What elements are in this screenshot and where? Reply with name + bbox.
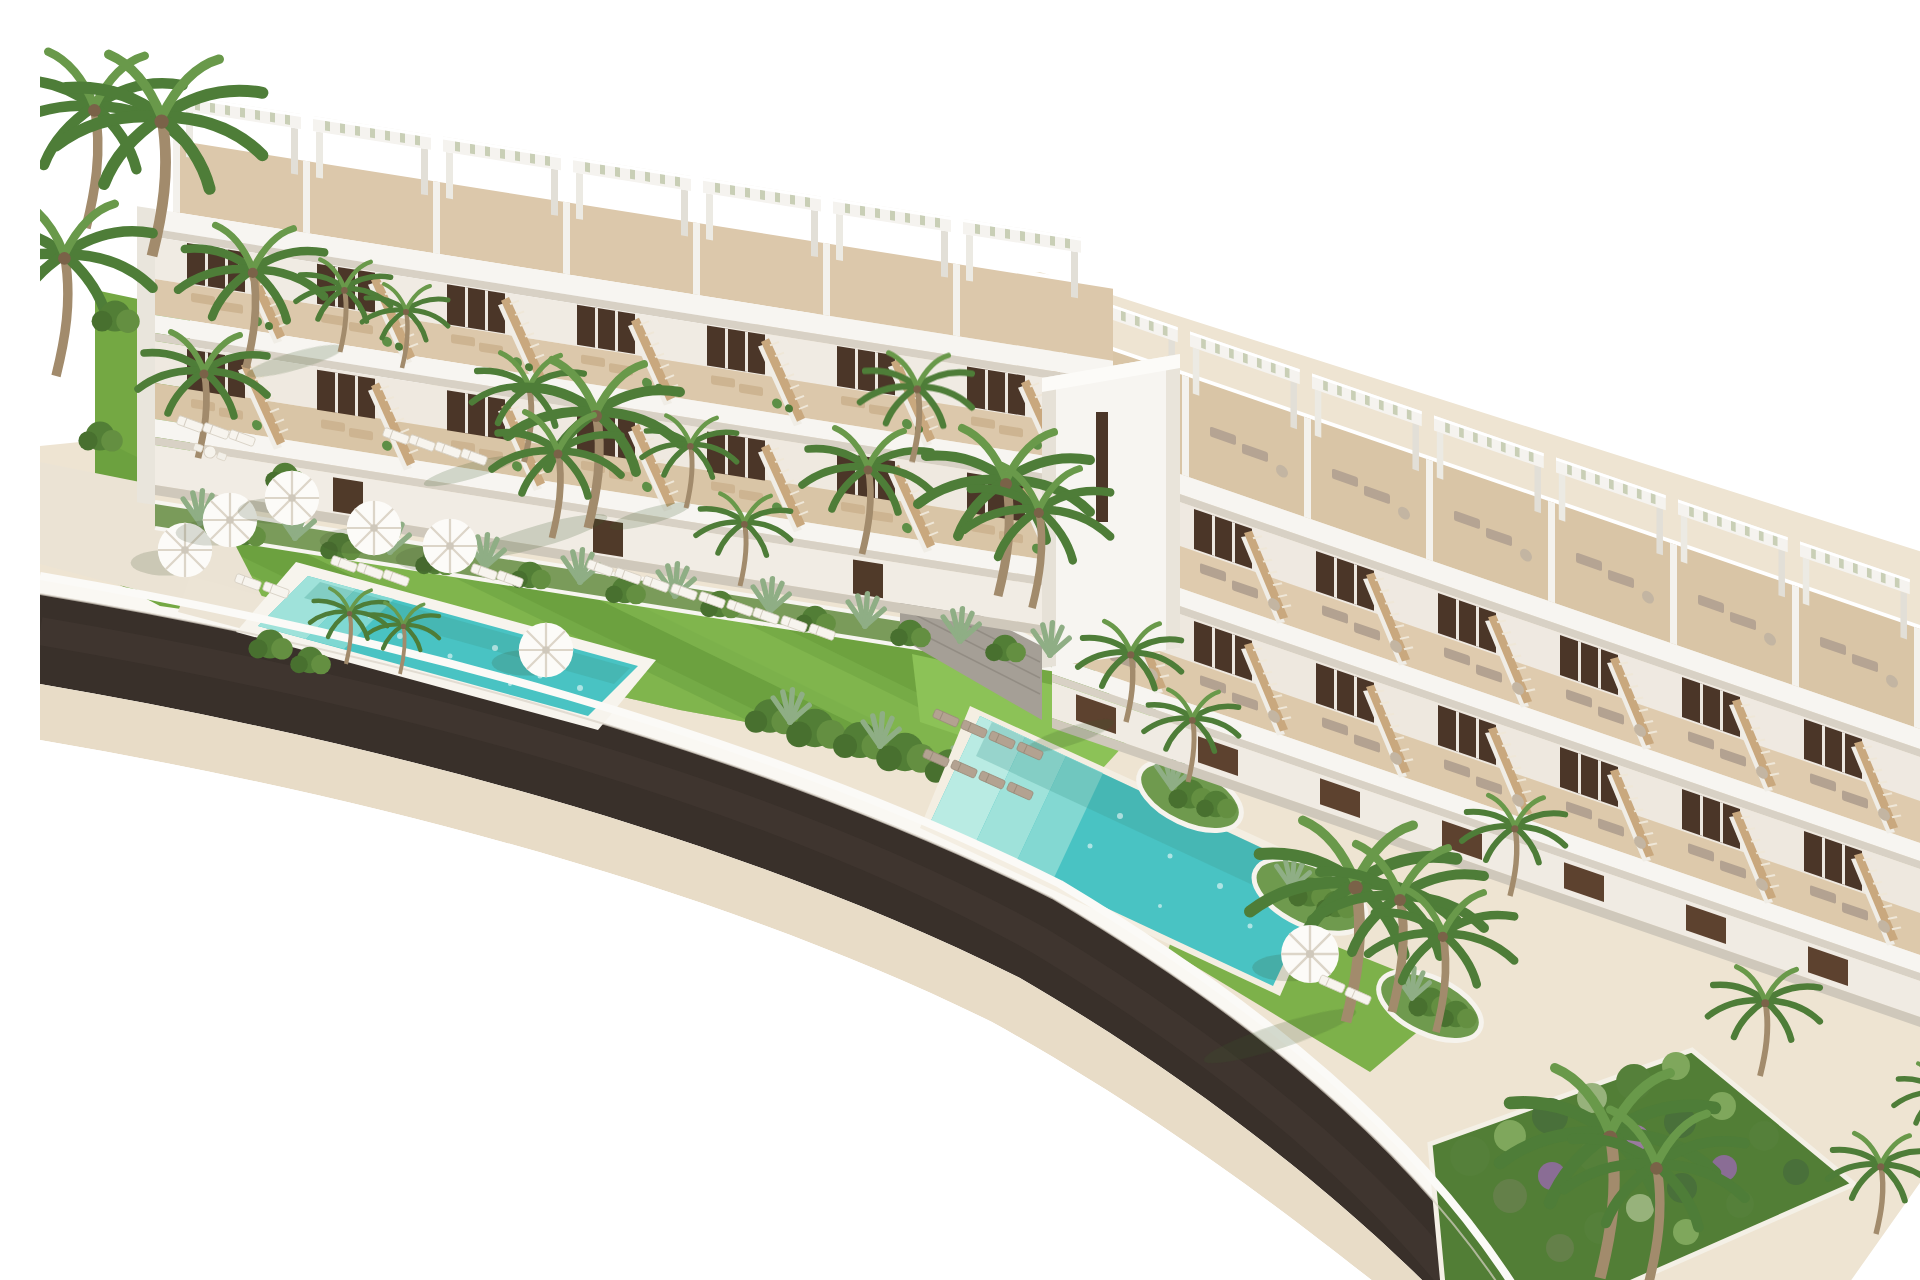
architectural-render: [40, 16, 1920, 1280]
tower-window: [1096, 412, 1108, 522]
